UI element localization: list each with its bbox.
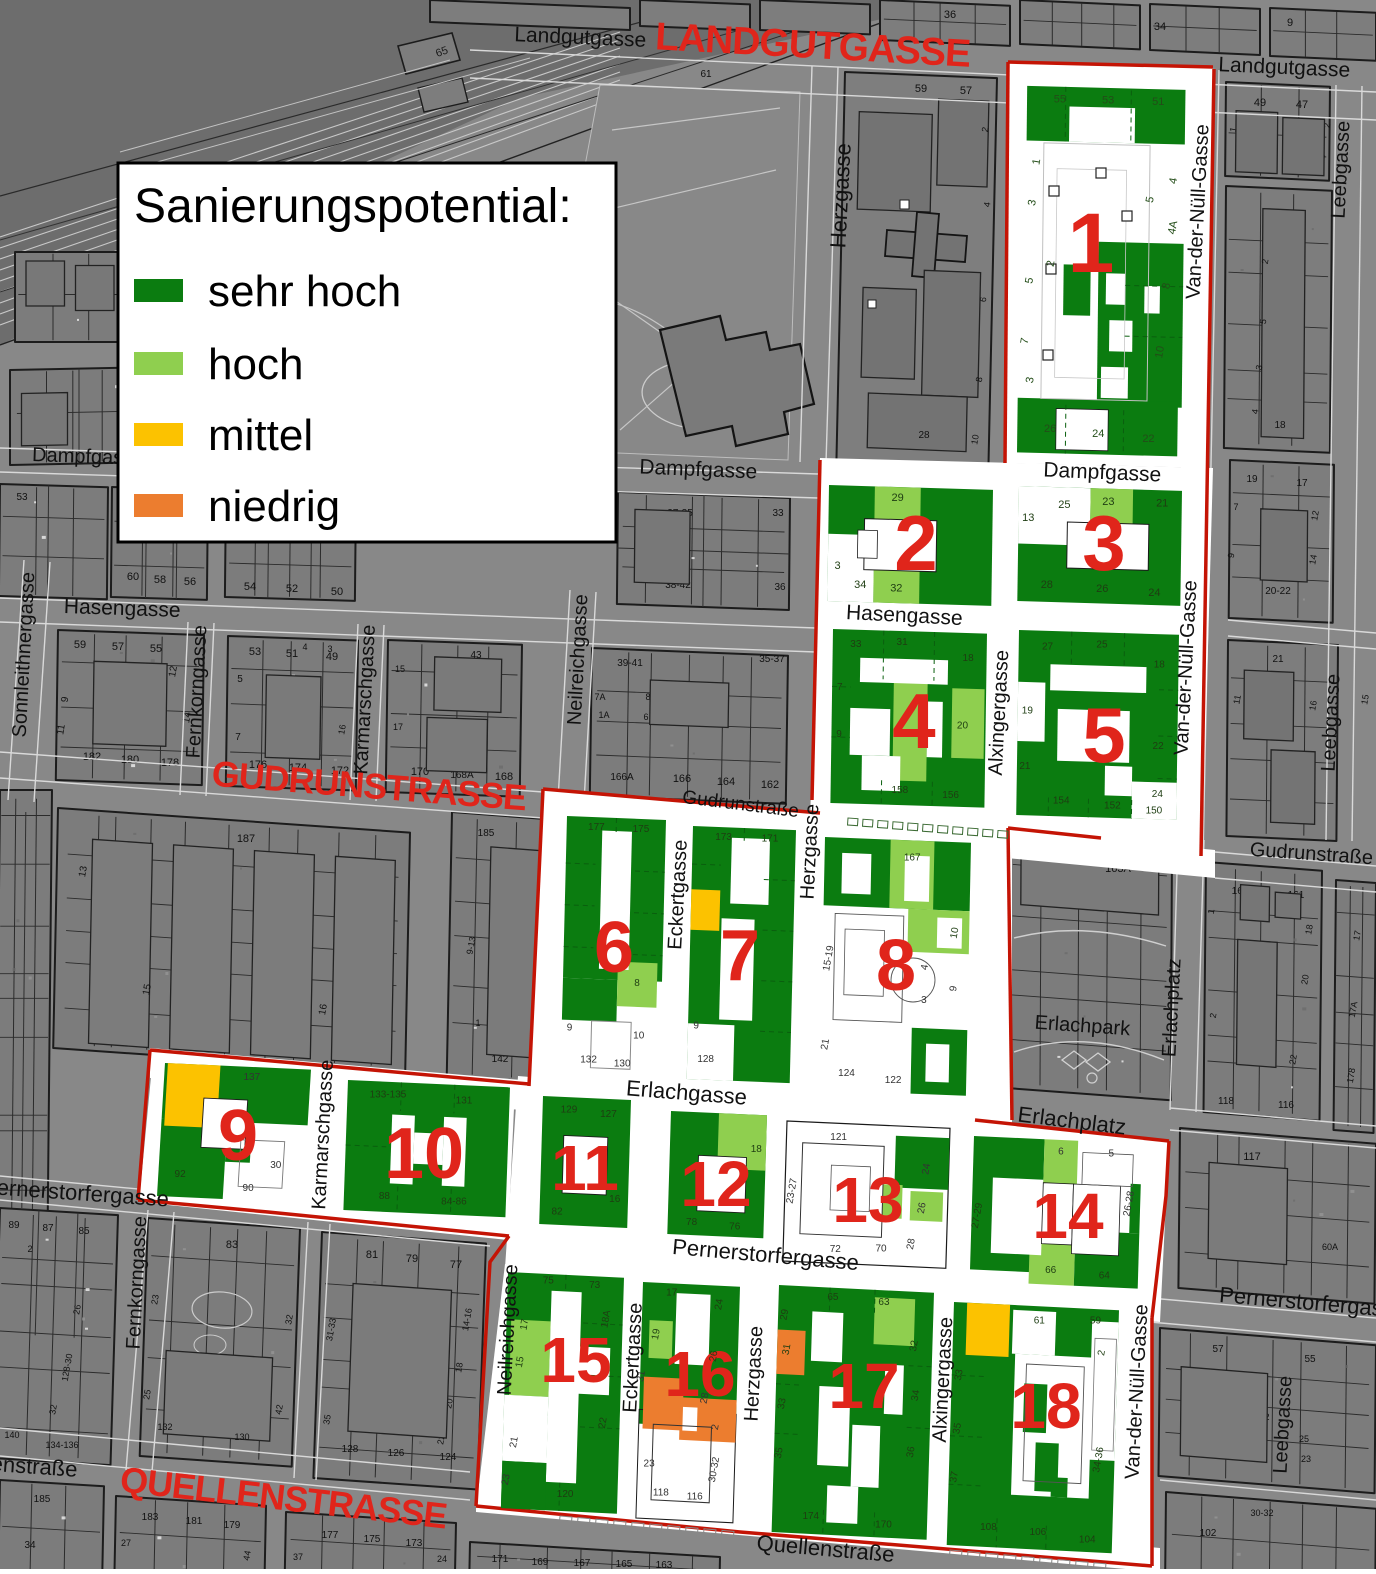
svg-text:2: 2 [894,499,937,587]
svg-text:9: 9 [218,1096,258,1176]
svg-text:4: 4 [302,642,307,652]
svg-text:32: 32 [47,1404,59,1416]
svg-text:55: 55 [150,643,162,655]
svg-text:51: 51 [1152,96,1164,108]
svg-text:52: 52 [286,583,298,595]
svg-text:127: 127 [600,1109,617,1120]
svg-text:5: 5 [237,674,243,685]
svg-text:88: 88 [379,1191,391,1202]
svg-text:4A: 4A [1166,219,1180,235]
svg-text:60: 60 [127,571,139,583]
svg-text:10: 10 [384,1114,464,1194]
svg-text:65: 65 [827,1292,839,1303]
svg-text:90: 90 [243,1183,255,1194]
svg-text:133-135: 133-135 [370,1089,407,1100]
svg-text:3: 3 [327,644,332,654]
svg-text:117: 117 [1243,1151,1261,1163]
svg-text:18: 18 [963,653,975,664]
svg-text:27: 27 [1042,641,1054,652]
svg-text:118: 118 [1218,1096,1234,1107]
svg-text:Sanierungspotential:: Sanierungspotential: [134,180,572,233]
svg-text:24: 24 [437,1554,447,1564]
svg-text:39-41: 39-41 [617,658,643,669]
svg-text:164: 164 [717,776,735,788]
svg-text:57: 57 [960,85,972,97]
svg-text:3: 3 [835,560,841,572]
svg-text:128: 128 [697,1054,714,1065]
svg-text:44: 44 [241,1550,253,1562]
svg-text:sehr hoch: sehr hoch [208,267,401,316]
svg-text:175: 175 [633,824,650,835]
svg-text:53: 53 [249,646,261,658]
svg-text:10: 10 [969,434,981,446]
svg-text:1A: 1A [598,710,609,720]
svg-text:4: 4 [892,677,935,765]
svg-text:156: 156 [942,790,959,801]
svg-text:64: 64 [1099,1270,1111,1281]
svg-text:23: 23 [1102,496,1114,508]
svg-text:27: 27 [121,1538,131,1548]
svg-text:niedrig: niedrig [208,482,340,531]
svg-text:32: 32 [283,1314,295,1326]
svg-text:26: 26 [1044,423,1056,435]
svg-text:8: 8 [876,926,916,1006]
svg-text:17: 17 [666,1287,678,1298]
svg-text:13: 13 [832,1164,903,1236]
svg-text:51: 51 [286,648,298,660]
svg-text:34: 34 [1154,21,1166,33]
svg-text:178: 178 [161,757,179,769]
svg-text:134-136: 134-136 [45,1440,78,1450]
svg-text:30-32: 30-32 [1250,1508,1273,1518]
svg-text:16: 16 [1307,700,1319,712]
svg-text:21: 21 [1272,654,1284,665]
svg-text:18: 18 [1274,420,1286,431]
svg-text:10: 10 [1153,345,1167,359]
svg-text:84-86: 84-86 [441,1197,467,1208]
svg-text:31: 31 [897,637,909,648]
svg-text:26: 26 [1096,583,1108,595]
svg-text:35-37: 35-37 [759,654,785,665]
svg-text:15: 15 [1359,694,1371,706]
svg-text:129: 129 [561,1105,578,1116]
svg-text:5: 5 [1082,691,1125,779]
svg-text:13: 13 [1022,512,1034,524]
svg-text:Hasengasse: Hasengasse [63,595,180,622]
svg-text:22: 22 [1153,741,1165,752]
svg-text:6: 6 [594,908,634,988]
svg-text:79: 79 [406,1253,418,1265]
svg-text:47: 47 [1296,99,1308,111]
svg-text:140: 140 [4,1430,19,1440]
svg-text:36: 36 [774,582,786,593]
svg-text:154: 154 [1053,795,1070,806]
svg-text:130: 130 [614,1058,631,1069]
svg-text:34: 34 [854,579,866,591]
svg-text:7: 7 [1233,502,1238,512]
svg-text:18: 18 [1154,660,1166,671]
svg-text:169: 169 [532,1557,549,1568]
svg-text:10: 10 [633,1030,645,1041]
svg-text:24: 24 [1092,428,1104,440]
svg-text:53: 53 [16,492,28,503]
svg-text:92: 92 [175,1169,187,1180]
svg-text:33: 33 [850,639,862,650]
svg-text:70: 70 [875,1243,887,1254]
svg-text:171: 171 [762,834,779,845]
svg-text:26: 26 [71,1304,83,1316]
svg-text:11: 11 [1231,694,1242,705]
svg-text:55: 55 [1304,1354,1316,1365]
svg-text:131: 131 [456,1095,473,1106]
svg-text:23: 23 [644,1459,656,1470]
svg-text:30: 30 [270,1160,282,1171]
svg-text:152: 152 [1104,801,1121,812]
svg-text:12: 12 [1309,510,1321,522]
svg-text:6: 6 [643,712,648,722]
svg-text:18: 18 [751,1144,763,1155]
svg-text:24: 24 [1148,587,1160,599]
svg-text:19: 19 [1246,474,1258,485]
svg-text:177: 177 [322,1530,339,1541]
svg-text:57: 57 [112,641,124,653]
svg-text:20-22: 20-22 [1265,586,1291,597]
svg-text:19: 19 [1022,706,1034,717]
svg-text:59: 59 [1090,1316,1102,1327]
svg-text:158: 158 [892,785,909,796]
svg-text:163: 163 [656,1560,673,1569]
svg-text:185: 185 [478,828,495,839]
svg-text:82: 82 [552,1207,564,1218]
svg-text:108: 108 [980,1522,997,1533]
svg-text:187: 187 [237,833,255,845]
svg-text:7: 7 [837,682,843,693]
svg-text:59: 59 [915,83,927,95]
svg-text:181: 181 [186,1516,203,1527]
svg-text:116: 116 [687,1492,703,1503]
svg-text:124: 124 [440,1452,457,1463]
svg-text:124: 124 [838,1068,855,1079]
svg-text:23: 23 [149,1294,161,1306]
svg-text:18: 18 [1303,924,1315,936]
svg-text:128: 128 [342,1444,359,1455]
svg-text:28: 28 [1041,579,1053,591]
svg-text:mittel: mittel [208,411,313,460]
svg-text:42: 42 [273,1404,285,1416]
svg-text:104: 104 [1079,1534,1096,1545]
svg-text:58: 58 [154,574,166,586]
svg-text:87: 87 [42,1223,54,1234]
svg-text:20: 20 [1299,974,1311,986]
svg-text:167: 167 [574,1558,591,1569]
svg-text:170: 170 [875,1520,892,1531]
svg-text:14: 14 [1032,1180,1104,1252]
svg-text:24: 24 [1152,789,1164,800]
svg-text:77: 77 [450,1259,462,1271]
svg-text:171: 171 [492,1554,509,1565]
svg-text:61: 61 [1034,1315,1046,1326]
svg-text:9: 9 [693,1021,699,1032]
svg-text:37: 37 [293,1552,303,1562]
svg-text:116: 116 [1278,1100,1294,1111]
svg-text:17: 17 [393,722,403,732]
svg-text:50: 50 [331,586,343,598]
svg-text:60A: 60A [1322,1242,1338,1252]
svg-text:75: 75 [543,1275,555,1286]
svg-text:175: 175 [364,1534,381,1545]
svg-text:29: 29 [892,492,904,504]
svg-text:73: 73 [589,1280,601,1291]
svg-text:17: 17 [828,1350,899,1422]
svg-text:9: 9 [836,729,842,740]
svg-text:17: 17 [1296,478,1308,489]
svg-text:25: 25 [1299,1434,1309,1444]
svg-text:16: 16 [336,724,348,736]
svg-text:1: 1 [1068,196,1115,290]
svg-text:6: 6 [1058,1146,1064,1157]
svg-text:162: 162 [761,779,779,791]
svg-text:1: 1 [475,1018,480,1028]
svg-text:85: 85 [78,1226,90,1237]
svg-text:185: 185 [34,1494,51,1505]
svg-text:7: 7 [720,916,760,996]
svg-text:122: 122 [885,1075,902,1086]
svg-text:18: 18 [453,1362,465,1374]
svg-text:3: 3 [1082,499,1125,587]
svg-text:83: 83 [226,1239,238,1251]
svg-text:2: 2 [27,1244,32,1254]
svg-text:53: 53 [1102,95,1114,107]
svg-text:28: 28 [918,430,930,441]
svg-text:167: 167 [904,853,921,864]
svg-text:121: 121 [830,1132,847,1143]
svg-text:7: 7 [235,732,241,743]
svg-text:7A: 7A [594,692,605,702]
svg-text:34: 34 [24,1540,36,1551]
svg-text:54: 54 [244,581,256,593]
svg-text:118: 118 [653,1488,669,1499]
svg-text:56: 56 [184,576,196,588]
svg-text:61: 61 [700,69,712,80]
svg-text:25: 25 [141,1389,153,1401]
svg-text:165: 165 [616,1559,633,1569]
svg-text:12: 12 [680,1148,751,1220]
svg-text:8: 8 [634,978,640,989]
svg-text:179: 179 [224,1520,241,1531]
svg-text:20: 20 [957,721,969,732]
svg-text:120: 120 [557,1489,574,1500]
svg-text:32: 32 [890,582,902,594]
svg-text:16: 16 [609,1194,621,1205]
svg-text:76: 76 [729,1222,741,1233]
svg-text:59: 59 [74,639,86,651]
svg-text:35: 35 [321,1414,333,1426]
svg-text:173: 173 [406,1538,423,1549]
svg-text:66: 66 [1045,1265,1057,1276]
svg-text:57: 57 [1212,1344,1224,1355]
svg-text:22: 22 [1287,1054,1299,1066]
svg-text:25: 25 [1058,499,1070,511]
svg-text:166: 166 [673,773,691,785]
svg-text:78: 78 [686,1217,698,1228]
svg-text:36: 36 [944,9,956,21]
svg-text:182: 182 [83,751,101,763]
svg-text:166A: 166A [610,772,634,783]
svg-text:180: 180 [121,754,139,766]
svg-text:9: 9 [1287,17,1293,29]
svg-text:132: 132 [580,1054,597,1065]
svg-text:89: 89 [8,1220,20,1231]
svg-text:23: 23 [1301,1454,1311,1464]
svg-text:132: 132 [157,1422,172,1432]
svg-text:55: 55 [1054,93,1066,105]
svg-text:183: 183 [142,1512,159,1523]
svg-text:49: 49 [1254,97,1266,109]
svg-text:21: 21 [1156,497,1168,509]
svg-text:173: 173 [715,832,732,843]
svg-text:3: 3 [921,995,927,1006]
svg-text:150: 150 [1146,806,1163,817]
svg-text:15: 15 [540,1324,611,1396]
svg-text:81: 81 [366,1249,378,1261]
svg-text:17: 17 [1351,930,1363,942]
svg-text:130: 130 [234,1432,249,1442]
svg-text:63: 63 [878,1297,890,1308]
svg-text:25: 25 [1096,639,1108,650]
svg-text:14: 14 [1307,554,1319,566]
svg-text:126: 126 [388,1448,405,1459]
svg-text:177: 177 [588,822,605,833]
svg-text:15: 15 [395,664,405,674]
svg-text:102: 102 [1200,1528,1217,1539]
svg-text:106: 106 [1030,1527,1047,1538]
svg-text:21: 21 [1019,761,1031,772]
svg-text:22: 22 [1142,433,1154,445]
svg-text:9: 9 [567,1022,573,1033]
svg-text:174: 174 [802,1511,819,1522]
svg-text:137: 137 [243,1072,260,1083]
svg-text:18: 18 [1010,1370,1081,1442]
svg-text:33: 33 [772,508,784,519]
svg-text:5: 5 [1109,1149,1115,1160]
svg-text:hoch: hoch [208,340,303,389]
